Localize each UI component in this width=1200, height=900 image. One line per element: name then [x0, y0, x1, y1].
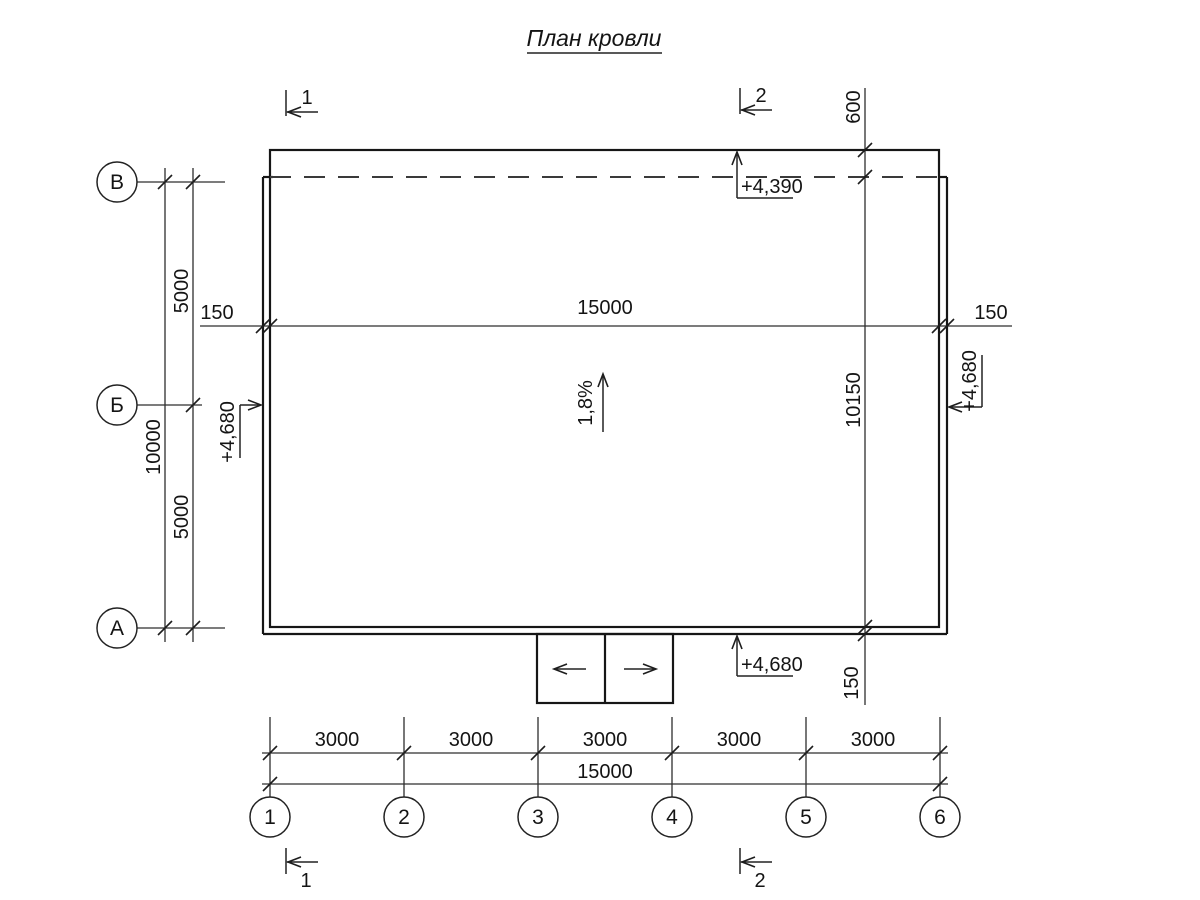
dim-span-3: 3000: [583, 729, 628, 751]
axis-label-b: Б: [110, 394, 124, 417]
canopy-block: [537, 634, 673, 703]
slope-label: 1,8%: [575, 380, 597, 426]
roof-upper-rect: [270, 150, 939, 627]
section-label-1-bottom: 1: [300, 870, 311, 892]
elevation-mark-top: +4,390: [732, 152, 803, 198]
section-label-1-top: 1: [301, 87, 312, 109]
dim-right-150: 150: [841, 666, 863, 699]
elevation-right-label: +4,680: [959, 350, 981, 412]
dim-span-2: 3000: [449, 729, 494, 751]
dim-right-10150: 10150: [843, 372, 865, 428]
section-mark-1-bottom: 1: [286, 848, 318, 892]
section-label-2-top: 2: [755, 85, 766, 107]
dim-right-600: 600: [843, 90, 865, 123]
axis-label-4: 4: [666, 806, 678, 829]
axis-label-5: 5: [800, 806, 812, 829]
roof-plan-drawing: План кровли 1,8% В Б А: [0, 0, 1200, 900]
axis-label-a: А: [110, 617, 124, 640]
column-axis-markers: 1 2 3 4 5 6: [250, 797, 960, 837]
elevation-mark-left: +4,680: [217, 400, 261, 463]
dim-left-10000: 10000: [143, 419, 165, 475]
axis-label-3: 3: [532, 806, 544, 829]
axis-label-v: В: [110, 171, 124, 194]
elevation-top-label: +4,390: [741, 176, 803, 198]
axis-label-1: 1: [264, 806, 276, 829]
dim-top-15000: 15000: [577, 297, 633, 319]
axis-label-2: 2: [398, 806, 410, 829]
elevation-bottom-label: +4,680: [741, 654, 803, 676]
elevation-mark-right: +4,680: [949, 350, 982, 412]
axis-label-6: 6: [934, 806, 946, 829]
drawing-title: План кровли: [527, 25, 662, 51]
dim-span-1: 3000: [315, 729, 360, 751]
elevation-left-label: +4,680: [217, 401, 239, 463]
section-mark-1-top: 1: [286, 87, 318, 117]
section-label-2-bottom: 2: [754, 870, 765, 892]
dim-span-4: 3000: [717, 729, 762, 751]
bottom-dimension-chain: 3000 3000 3000 3000 3000 15000: [262, 717, 948, 797]
dim-top-right-150: 150: [974, 302, 1007, 324]
dim-span-5: 3000: [851, 729, 896, 751]
elevation-mark-bottom: +4,680: [732, 636, 803, 676]
middle-dimension-line: 150 15000 150: [200, 297, 1012, 333]
right-dimension-line: 600 10150 150: [841, 88, 872, 705]
section-mark-2-top: 2: [740, 85, 772, 115]
roof-plan-page: План кровли 1,8% В Б А: [0, 0, 1200, 900]
dim-left-upper-5000: 5000: [171, 269, 193, 314]
row-axis-markers: В Б А: [97, 162, 225, 648]
dim-left-lower-5000: 5000: [171, 495, 193, 540]
dim-bottom-total: 15000: [577, 761, 633, 783]
dim-top-left-150: 150: [200, 302, 233, 324]
section-mark-2-bottom: 2: [740, 848, 772, 892]
slope-mark: 1,8%: [575, 374, 608, 432]
